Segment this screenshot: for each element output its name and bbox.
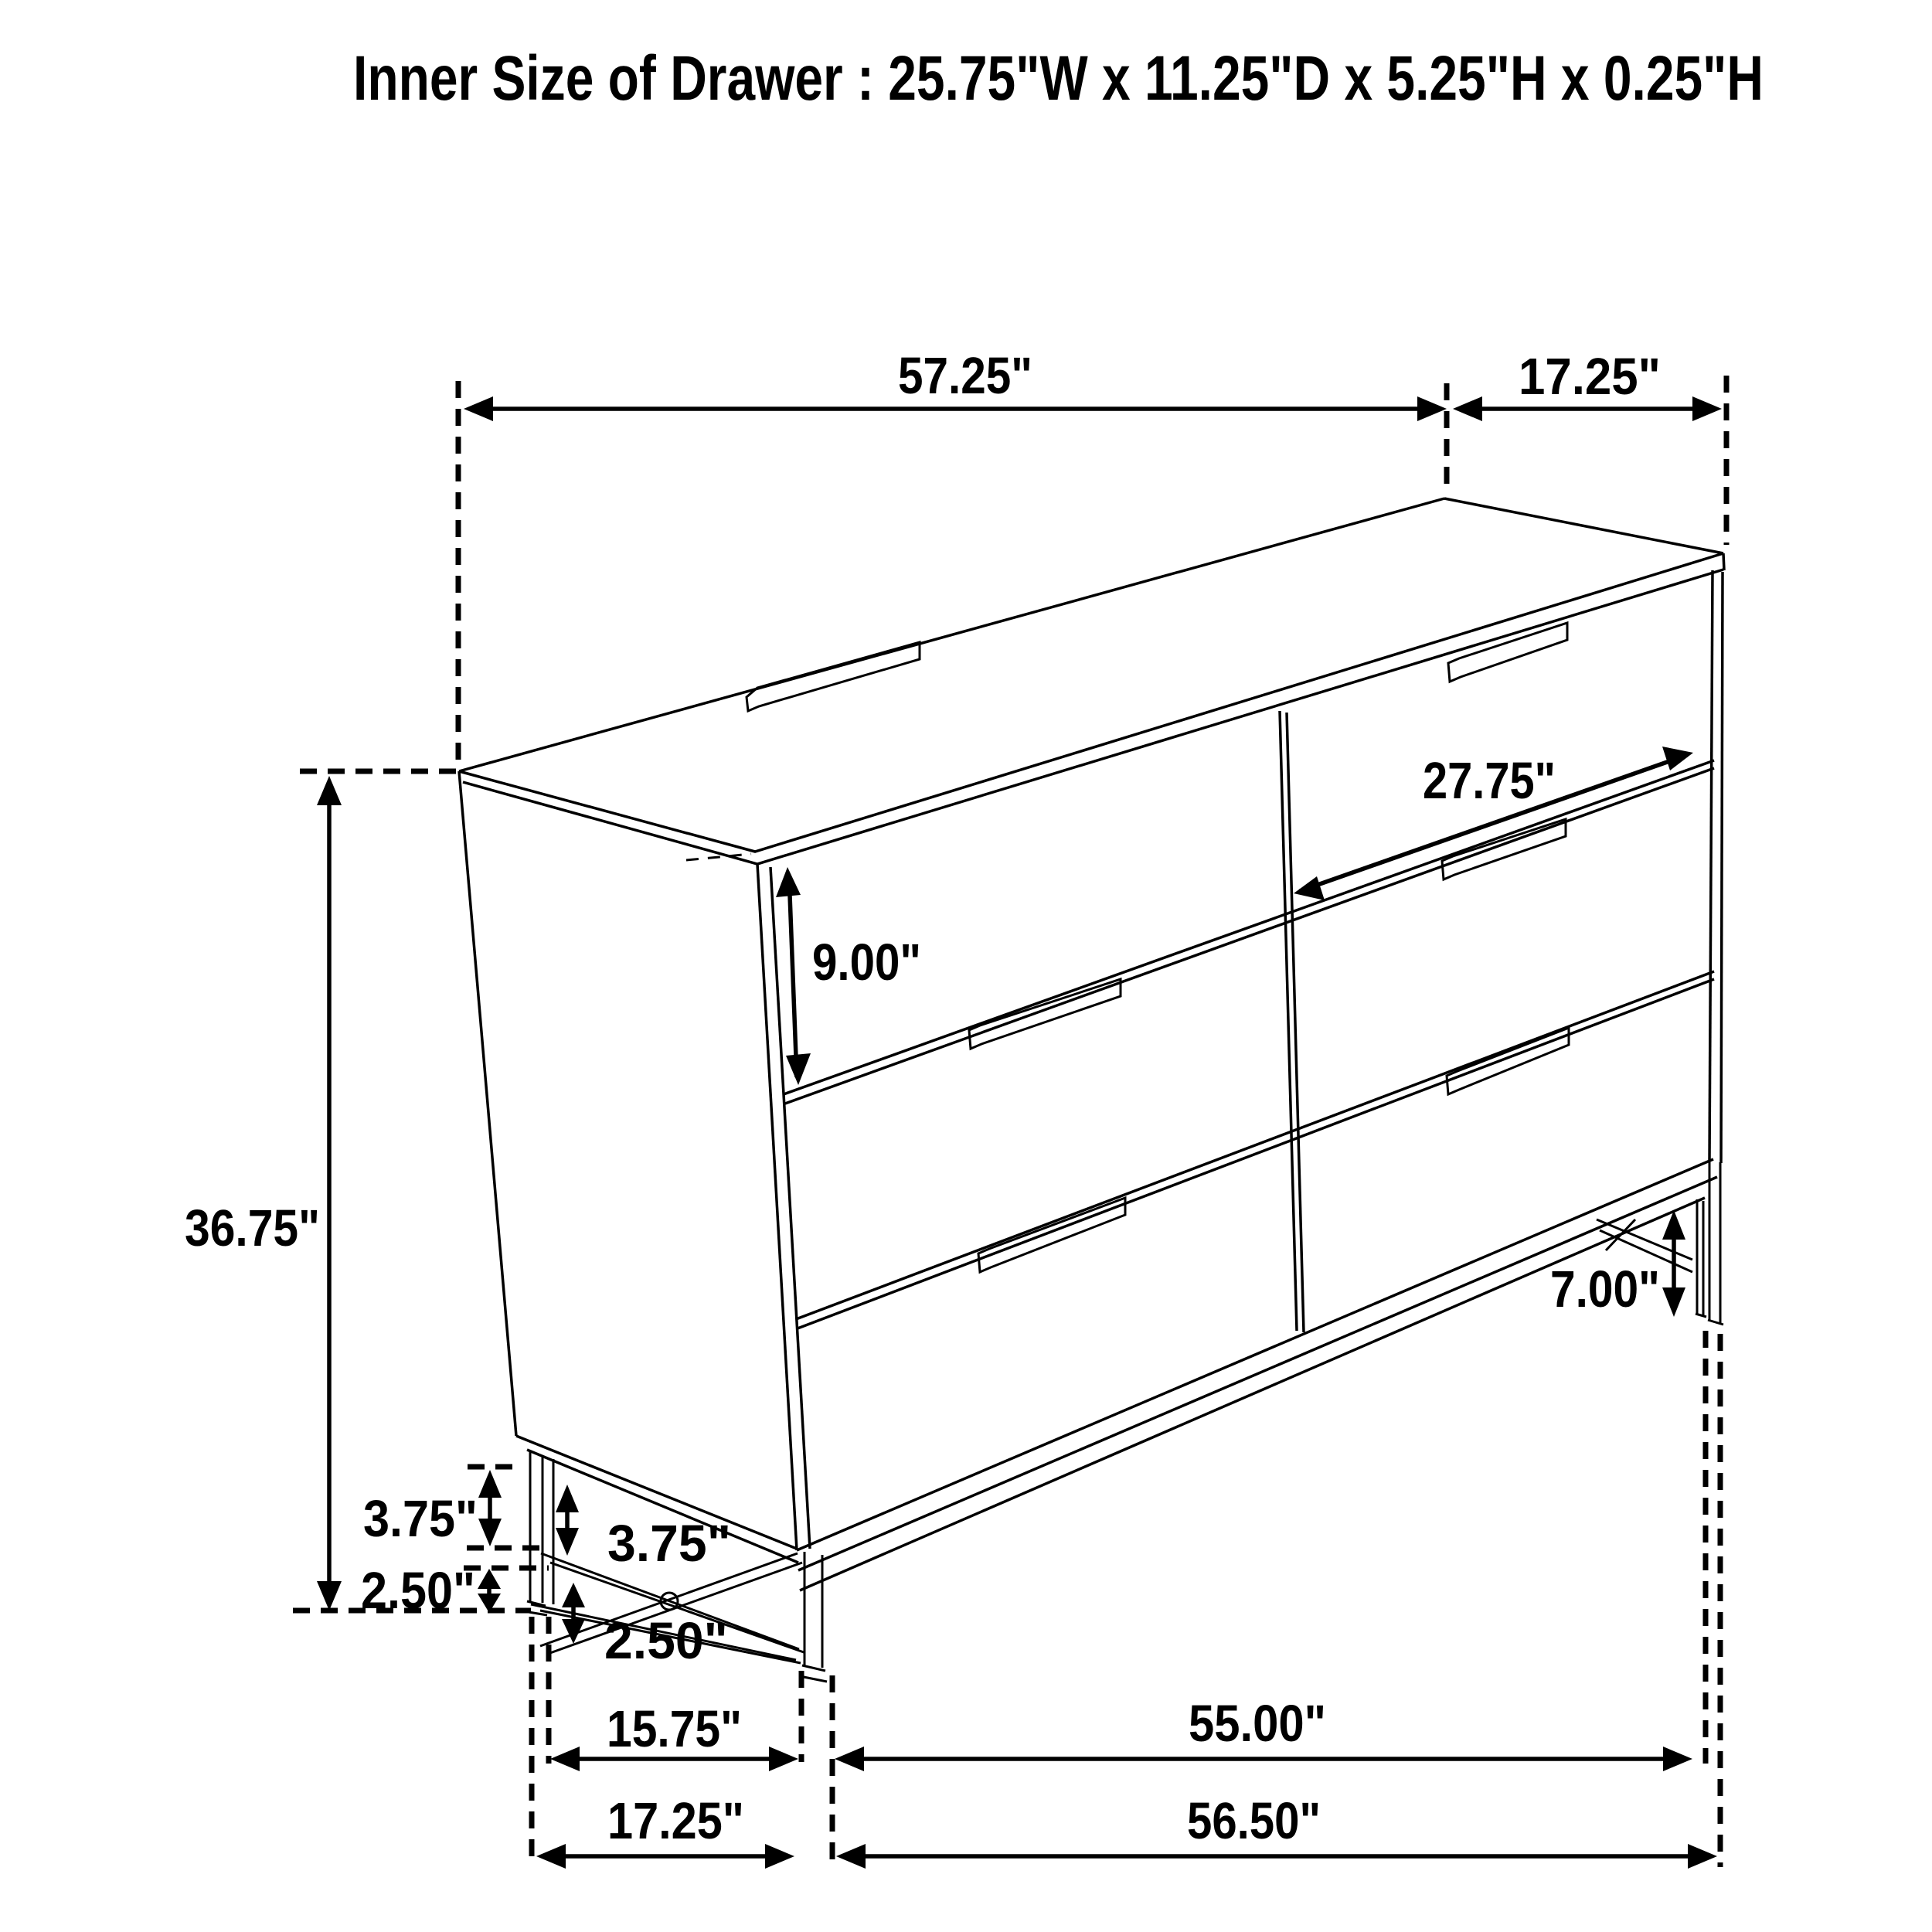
svg-text:2.50": 2.50" <box>604 1612 728 1670</box>
svg-text:7.00": 7.00" <box>1550 1260 1660 1318</box>
svg-text:9.00": 9.00" <box>812 934 921 992</box>
svg-text:17.25": 17.25" <box>1519 348 1661 406</box>
svg-text:3.75": 3.75" <box>363 1490 478 1548</box>
svg-text:17.25": 17.25" <box>607 1792 744 1850</box>
svg-text:27.75": 27.75" <box>1423 752 1556 810</box>
svg-text:15.75": 15.75" <box>607 1700 742 1758</box>
svg-text:57.25": 57.25" <box>898 347 1032 405</box>
svg-text:3.75": 3.75" <box>607 1515 731 1573</box>
svg-text:2.50": 2.50" <box>361 1562 475 1620</box>
svg-text:36.75": 36.75" <box>185 1199 320 1257</box>
svg-text:55.00": 55.00" <box>1189 1695 1326 1753</box>
svg-text:Inner Size of Drawer : 25.75"W: Inner Size of Drawer : 25.75"W x 11.25"D… <box>353 43 1764 114</box>
svg-text:56.50": 56.50" <box>1187 1792 1321 1850</box>
